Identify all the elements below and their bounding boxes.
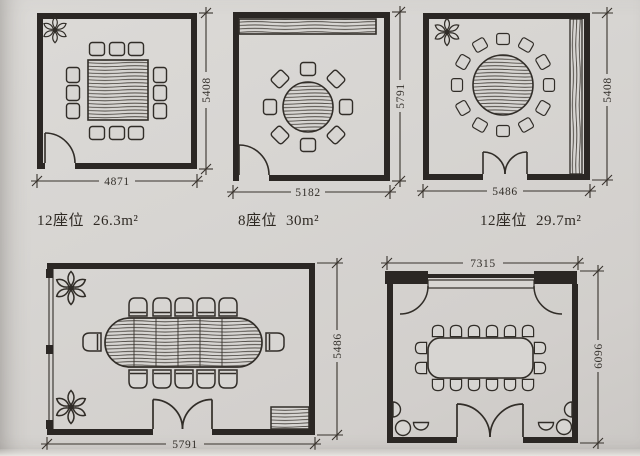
seat-count-label: 12座位: [37, 213, 84, 229]
dimension-width: 7315: [381, 256, 584, 270]
chair-icon: [270, 125, 290, 145]
chair-icon: [219, 370, 237, 388]
chair-icon: [340, 100, 353, 115]
svg-text:7315: 7315: [470, 258, 495, 270]
chair-icon: [534, 342, 545, 353]
plan-banquet-room: 7315 6096: [381, 256, 605, 449]
dimension-height: 6096: [580, 265, 605, 449]
chair-icon: [522, 379, 533, 390]
partition-door-swings: [400, 286, 562, 314]
round-dining-table: [473, 55, 533, 115]
meeting-table: [88, 60, 148, 120]
sideboard-cabinet: [239, 19, 376, 34]
chair-icon: [543, 79, 554, 92]
chair-icon: [486, 379, 497, 390]
plan-12-seat-round-room: 5486 5408: [417, 7, 614, 198]
chair-icon: [472, 117, 489, 133]
plan-caption-1: 12座位26.3m²: [37, 211, 138, 231]
area-label: 26.3m²: [93, 213, 138, 229]
photo-edge: [0, 449, 640, 456]
dimension-height: 5791: [392, 6, 407, 187]
chair-icon: [518, 117, 535, 133]
chair-icon: [197, 370, 215, 388]
movable-partition: [428, 274, 534, 288]
chair-icon: [197, 298, 215, 316]
chair-icon: [67, 104, 80, 119]
dimension-width: 5182: [227, 185, 396, 199]
chair-icon: [468, 325, 479, 336]
plant-icon: [55, 391, 87, 424]
lounge-corner-left: [393, 402, 429, 436]
door: [45, 133, 75, 163]
chair-icon: [90, 127, 105, 140]
chair-icon: [432, 379, 443, 390]
door: [239, 145, 269, 175]
chair-icon: [432, 325, 443, 336]
chair-icon: [455, 54, 471, 71]
chair-icon: [535, 100, 551, 117]
dimension-height: 5408: [592, 7, 614, 186]
chair-icon: [534, 362, 545, 373]
chair-icon: [219, 298, 237, 316]
chair-icon: [129, 298, 147, 316]
round-dining-table: [283, 82, 333, 132]
dimension-width: 4871: [31, 174, 203, 188]
plan-caption-2: 8座位30m²: [238, 211, 319, 231]
chair-icon: [90, 43, 105, 56]
chair-icon: [129, 127, 144, 140]
chair-icon: [504, 325, 515, 336]
chair-icon: [535, 54, 551, 71]
tub-chair-icon: [565, 402, 573, 417]
svg-text:5791: 5791: [395, 83, 407, 108]
chair-icon: [486, 325, 497, 336]
seat-count-label: 8座位: [238, 213, 277, 229]
chair-icon: [455, 100, 471, 117]
chair-icon: [129, 370, 147, 388]
chair-icon: [110, 127, 125, 140]
chair-icon: [153, 298, 171, 316]
lounge-corner-right: [539, 402, 573, 435]
svg-text:5486: 5486: [492, 186, 517, 198]
chair-icon: [497, 33, 510, 44]
plant-icon: [43, 17, 67, 43]
svg-text:4871: 4871: [104, 176, 129, 188]
svg-text:5486: 5486: [332, 333, 344, 358]
chair-icon: [67, 86, 80, 101]
svg-text:5408: 5408: [201, 77, 213, 102]
chair-icon: [301, 63, 316, 76]
plan-caption-3: 12座位29.7m²: [480, 211, 581, 231]
chair-icon: [270, 69, 290, 89]
sideboard-cabinet: [271, 407, 309, 429]
chair-icon: [451, 79, 462, 92]
chair-icon: [154, 104, 167, 119]
plan-oval-table-room: 5791 5486: [41, 258, 344, 451]
chair-icon: [497, 125, 510, 136]
floorplan-sheet: 4871 5408: [0, 0, 640, 456]
chair-icon: [266, 333, 284, 351]
side-table-icon: [396, 421, 411, 436]
svg-text:5408: 5408: [602, 77, 614, 102]
chair-icon: [83, 333, 101, 351]
chair-icon: [415, 362, 426, 373]
chair-icon: [175, 298, 193, 316]
banquet-table: [428, 338, 533, 378]
chair-icon: [301, 139, 316, 152]
side-table-icon: [557, 420, 572, 435]
dimension-width: 5486: [417, 184, 596, 198]
dimension-height: 5486: [317, 258, 344, 440]
seat-count-label: 12座位: [480, 213, 527, 229]
oval-conference-table: [105, 318, 262, 367]
area-label: 29.7m²: [536, 213, 581, 229]
tub-chair-icon: [414, 423, 429, 431]
chair-icon: [264, 100, 277, 115]
double-door: [483, 152, 527, 174]
plant-icon: [55, 272, 87, 305]
dimension-height: 5408: [199, 7, 213, 175]
chair-icon: [67, 68, 80, 83]
chair-icon: [522, 325, 533, 336]
chair-icon: [154, 68, 167, 83]
chair-icon: [504, 379, 515, 390]
svg-text:5182: 5182: [295, 187, 320, 199]
chair-icon: [110, 43, 125, 56]
chair-icon: [472, 37, 489, 53]
chair-icon: [326, 125, 346, 145]
plan-12-seat-rect-room: 4871 5408: [31, 7, 213, 188]
chair-icon: [129, 43, 144, 56]
chair-icon: [518, 37, 535, 53]
area-label: 30m²: [286, 213, 319, 229]
chair-icon: [468, 379, 479, 390]
double-door: [153, 400, 212, 430]
chair-icon: [153, 370, 171, 388]
chair-icon: [326, 69, 346, 89]
svg-text:6096: 6096: [593, 343, 605, 368]
window-wall: [46, 269, 53, 429]
chair-icon: [450, 379, 461, 390]
plant-icon: [434, 19, 460, 46]
chair-icon: [450, 325, 461, 336]
chair-icon: [154, 86, 167, 101]
tub-chair-icon: [539, 423, 554, 431]
plan-8-seat-round-room: 5182 5791: [227, 6, 407, 199]
chair-icon: [175, 370, 193, 388]
double-door: [457, 404, 523, 437]
chair-icon: [415, 342, 426, 353]
wall-cabinet: [570, 19, 582, 174]
tub-chair-icon: [393, 402, 401, 417]
